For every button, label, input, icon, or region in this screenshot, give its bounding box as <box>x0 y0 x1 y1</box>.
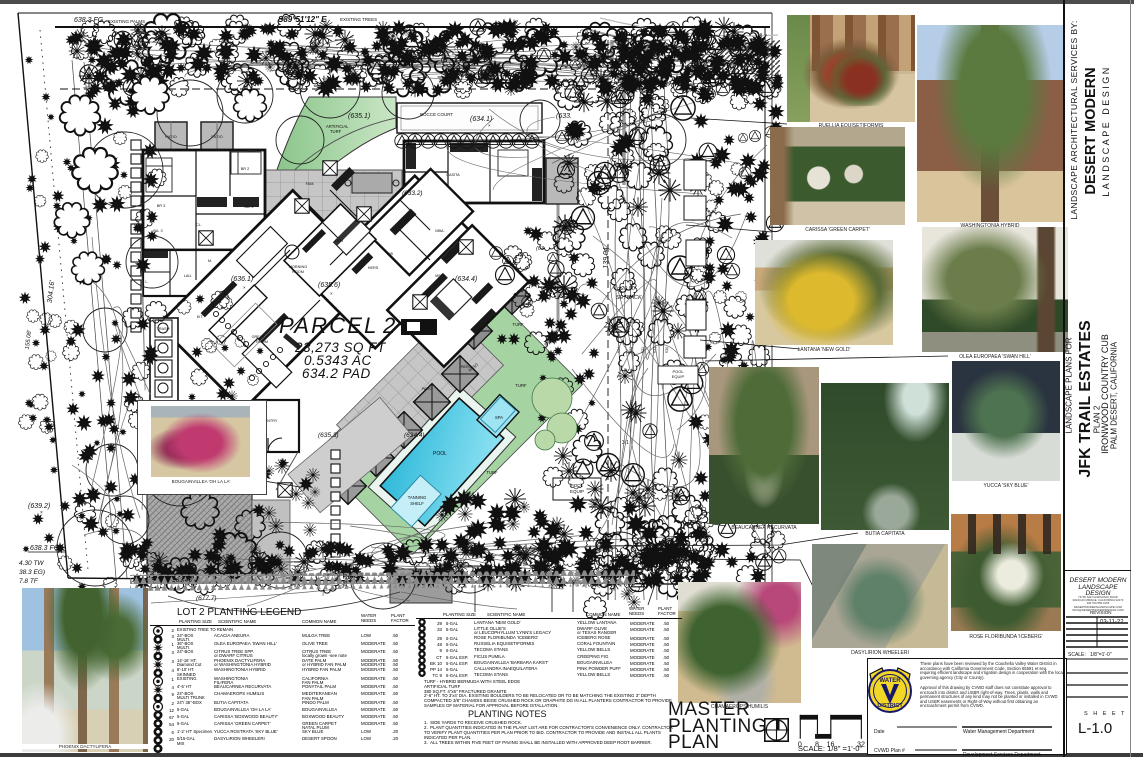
svg-text:2: 2 <box>382 313 395 338</box>
svg-text:TANNING: TANNING <box>408 495 427 500</box>
svg-text:SCALE:: SCALE: <box>1068 652 1086 658</box>
svg-text:38.3 EG): 38.3 EG) <box>19 569 45 576</box>
svg-text:(635.1): (635.1) <box>348 113 370 120</box>
svg-text:BR 2: BR 2 <box>241 167 249 171</box>
svg-text:7.8 TF: 7.8 TF <box>19 578 39 585</box>
svg-text:L-1.0: L-1.0 <box>1078 720 1112 737</box>
svg-text:BA. 2: BA. 2 <box>244 205 253 209</box>
svg-text:155.08': 155.08' <box>25 329 33 350</box>
svg-text:(634.1): (634.1) <box>470 116 492 123</box>
svg-text:SPA: SPA <box>495 415 503 420</box>
svg-text:MSR.: MSR. <box>435 274 445 278</box>
svg-text:EQUIP: EQUIP <box>570 489 584 494</box>
svg-text:BR 3: BR 3 <box>157 204 165 208</box>
svg-text:PARCEL: PARCEL <box>279 313 379 338</box>
svg-text:TRASH: TRASH <box>157 327 170 331</box>
svg-text:634: 634 <box>617 347 622 354</box>
svg-text:3:1: 3:1 <box>712 91 719 97</box>
svg-text:S H E E T: S H E E T <box>1084 711 1126 717</box>
svg-text:ROOM: ROOM <box>256 340 268 344</box>
svg-text:631: 631 <box>653 347 658 354</box>
svg-text:(636.1): (636.1) <box>231 276 253 283</box>
svg-text:3:1: 3:1 <box>622 440 629 446</box>
svg-text:HERS: HERS <box>368 266 379 270</box>
svg-text:(633.2): (633.2) <box>402 190 423 197</box>
svg-text:±20.00': ±20.00' <box>618 286 637 292</box>
svg-text:KIT.: KIT. <box>197 315 204 319</box>
svg-text:×: × <box>243 285 246 290</box>
svg-text:(677.7): (677.7) <box>196 595 217 602</box>
svg-text:4.30 TW: 4.30 TW <box>19 560 44 567</box>
svg-text:638.3 FG: 638.3 FG <box>30 545 60 552</box>
svg-text:Date: Date <box>874 729 885 735</box>
svg-text:(63: (63 <box>536 246 545 252</box>
svg-text:Development Services Departmen: Development Services Department <box>963 752 1041 757</box>
svg-text:(635.3): (635.3) <box>318 432 339 439</box>
svg-text:304.16': 304.16' <box>47 279 57 303</box>
svg-text:CVWD Plan #: CVWD Plan # <box>874 748 905 754</box>
svg-text:ROOM: ROOM <box>292 270 304 274</box>
svg-text:MBA.: MBA. <box>435 229 444 233</box>
svg-text:EXISTING PALMS: EXISTING PALMS <box>108 19 145 24</box>
svg-text:BOCCE COURT: BOCCE COURT <box>420 112 453 117</box>
svg-text:633: 633 <box>629 347 634 354</box>
svg-text:CL.: CL. <box>196 223 202 227</box>
svg-text:163.46': 163.46' <box>172 577 194 584</box>
svg-text:3:1: 3:1 <box>600 166 607 172</box>
svg-text:MORNING: MORNING <box>289 265 307 269</box>
svg-text:TURF: TURF <box>512 322 524 327</box>
svg-text:POOL: POOL <box>433 451 447 457</box>
svg-text:WATER: WATER <box>879 678 901 684</box>
svg-text:×: × <box>40 510 43 516</box>
svg-text:EXISTING TREES: EXISTING TREES <box>340 17 377 22</box>
svg-text:M.: M. <box>208 259 212 263</box>
svg-text:634.2 PAD: 634.2 PAD <box>302 366 371 381</box>
svg-text:FAM.: FAM. <box>306 182 315 186</box>
svg-text:SCALE: 1/8" =1'-0": SCALE: 1/8" =1'-0" <box>798 744 863 753</box>
svg-text:GREAT: GREAT <box>252 335 265 339</box>
svg-text:BA. 3: BA. 3 <box>153 229 162 233</box>
svg-text:DEN: DEN <box>335 239 343 243</box>
svg-text:TURF: TURF <box>486 470 498 475</box>
svg-text:LAU.: LAU. <box>184 274 192 278</box>
svg-text:(633.: (633. <box>556 113 572 120</box>
svg-text:630: 630 <box>665 347 670 354</box>
svg-text:(635.6): (635.6) <box>318 282 340 289</box>
svg-text:139.04: 139.04 <box>603 247 610 269</box>
svg-text:SETBACK: SETBACK <box>560 294 586 300</box>
svg-text:TURF: TURF <box>515 383 527 388</box>
svg-text:SHELF: SHELF <box>410 501 424 506</box>
svg-text:(639.2): (639.2) <box>28 503 50 510</box>
svg-text:638.3 FG: 638.3 FG <box>74 17 104 24</box>
svg-text:HIS: HIS <box>387 252 394 256</box>
svg-text:×: × <box>488 123 491 128</box>
svg-text:PATIO: PATIO <box>422 387 433 391</box>
svg-text:SETBACK: SETBACK <box>616 295 642 301</box>
svg-text:×: × <box>330 291 333 296</box>
svg-text:03-11-22: 03-11-22 <box>1100 620 1124 626</box>
svg-text:L.: L. <box>145 280 148 284</box>
svg-text:CASITA: CASITA <box>446 173 460 177</box>
svg-text:Water Management Department: Water Management Department <box>963 729 1035 735</box>
svg-text:(634.4): (634.4) <box>455 276 477 283</box>
svg-text:(634.4): (634.4) <box>404 432 425 439</box>
svg-text:TURF: TURF <box>330 129 342 134</box>
svg-text:S89°51'12" E: S89°51'12" E <box>278 15 327 24</box>
svg-text:EQUIP: EQUIP <box>672 374 685 379</box>
svg-text:632: 632 <box>641 347 646 354</box>
svg-text:1/8"=1'-0": 1/8"=1'-0" <box>1090 652 1112 658</box>
